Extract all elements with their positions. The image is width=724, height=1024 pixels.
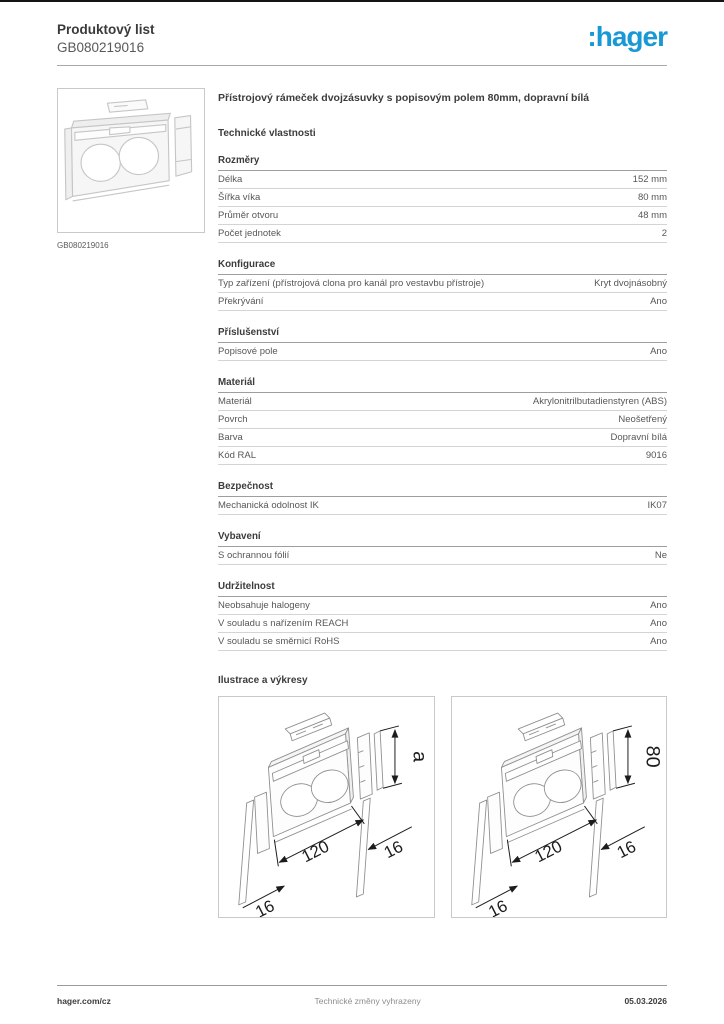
row-label: V souladu s nařízením REACH xyxy=(218,618,360,629)
section-title: Příslušenství xyxy=(218,327,667,343)
details-column: Přístrojový rámeček dvojzásuvky s popiso… xyxy=(218,88,667,918)
section-safety: Bezpečnost Mechanická odolnost IKIK07 xyxy=(218,481,667,515)
table-row: Popisové poleAno xyxy=(218,343,667,361)
header-divider xyxy=(57,65,667,66)
technical-drawing-2: 120 16 16 80 xyxy=(451,696,668,918)
row-value: 80 mm xyxy=(638,192,667,203)
isometric-drawing: 120 16 16 a xyxy=(219,697,434,917)
section-configuration: Konfigurace Typ zařízení (přístrojová cl… xyxy=(218,259,667,311)
table-row: Počet jednotek2 xyxy=(218,225,667,243)
row-label: Průměr otvoru xyxy=(218,210,290,221)
row-label: V souladu se směrnicí RoHS xyxy=(218,636,351,647)
hager-logo: :hager xyxy=(587,23,667,51)
row-value: IK07 xyxy=(647,500,667,511)
table-row: Délka152 mm xyxy=(218,171,667,189)
row-value: Akrylonitrilbutadienstyren (ABS) xyxy=(533,396,667,407)
row-label: Délka xyxy=(218,174,254,185)
header: Produktový list GB080219016 :hager xyxy=(0,0,724,56)
table-row: PřekrýváníAno xyxy=(218,293,667,311)
row-value: 9016 xyxy=(646,450,667,461)
table-row: Neobsahuje halogenyAno xyxy=(218,597,667,615)
row-label: Typ zařízení (přístrojová clona pro kaná… xyxy=(218,278,496,289)
section-sustainability: Udržitelnost Neobsahuje halogenyAno V so… xyxy=(218,581,667,651)
section-title: Konfigurace xyxy=(218,259,667,275)
row-label: Mechanická odolnost IK xyxy=(218,500,331,511)
table-row: V souladu se směrnicí RoHSAno xyxy=(218,633,667,651)
dim-width-label: 120 xyxy=(299,837,333,867)
section-title: Vybavení xyxy=(218,531,667,547)
product-image-column: GB080219016 xyxy=(57,88,205,918)
section-title: Rozměry xyxy=(218,155,667,171)
top-border xyxy=(0,0,724,2)
table-row: PovrchNeošetřený xyxy=(218,411,667,429)
row-label: Barva xyxy=(218,432,255,443)
dim-depth-label: 16 xyxy=(252,896,277,917)
row-value: Neošetřený xyxy=(618,414,667,425)
section-accessories: Příslušenství Popisové poleAno xyxy=(218,327,667,361)
row-value: Ano xyxy=(650,600,667,611)
main-content: GB080219016 Přístrojový rámeček dvojzásu… xyxy=(0,88,724,918)
row-value: Ano xyxy=(650,636,667,647)
row-value: Dopravní bílá xyxy=(610,432,667,443)
table-row: Šířka víka80 mm xyxy=(218,189,667,207)
footer: hager.com/cz Technické změny vyhrazeny 0… xyxy=(57,985,667,1006)
table-row: MateriálAkrylonitrilbutadienstyren (ABS) xyxy=(218,393,667,411)
product-title: Přístrojový rámeček dvojzásuvky s popiso… xyxy=(218,91,667,105)
product-image xyxy=(57,88,205,233)
row-label: Počet jednotek xyxy=(218,228,293,239)
footer-website-link[interactable]: hager.com/cz xyxy=(57,996,111,1006)
row-value: 2 xyxy=(662,228,667,239)
footer-date: 05.03.2026 xyxy=(624,996,667,1006)
table-row: Kód RAL9016 xyxy=(218,447,667,465)
row-value: Ne xyxy=(655,550,667,561)
table-row: Mechanická odolnost IKIK07 xyxy=(218,497,667,515)
table-row: S ochrannou fóliíNe xyxy=(218,547,667,565)
illustrations-heading: Ilustrace a výkresy xyxy=(218,675,667,686)
row-label: Kód RAL xyxy=(218,450,268,461)
row-value: Ano xyxy=(650,346,667,357)
row-label: S ochrannou fólií xyxy=(218,550,301,561)
doc-product-id: GB080219016 xyxy=(57,39,155,57)
row-value: Kryt dvojnásobný xyxy=(594,278,667,289)
doc-type-title: Produktový list xyxy=(57,21,155,39)
dim-width-label: 120 xyxy=(531,837,565,867)
section-dimensions: Rozměry Délka152 mm Šířka víka80 mm Prům… xyxy=(218,155,667,243)
product-line-art xyxy=(58,92,204,229)
section-material: Materiál MateriálAkrylonitrilbutadiensty… xyxy=(218,377,667,465)
row-label: Popisové pole xyxy=(218,346,290,357)
table-row: V souladu s nařízením REACHAno xyxy=(218,615,667,633)
row-value: 48 mm xyxy=(638,210,667,221)
section-equipment: Vybavení S ochrannou fóliíNe xyxy=(218,531,667,565)
technical-drawings: 120 16 16 a xyxy=(218,696,667,918)
footer-disclaimer: Technické změny vyhrazeny xyxy=(315,996,421,1006)
table-row: Typ zařízení (přístrojová clona pro kaná… xyxy=(218,275,667,293)
datasheet-page: Produktový list GB080219016 :hager xyxy=(0,0,724,1024)
technical-drawing-1: 120 16 16 a xyxy=(218,696,435,918)
row-value: 152 mm xyxy=(633,174,667,185)
row-label: Neobsahuje halogeny xyxy=(218,600,322,611)
row-label: Povrch xyxy=(218,414,260,425)
row-label: Šířka víka xyxy=(218,192,272,203)
row-value: Ano xyxy=(650,296,667,307)
section-title: Materiál xyxy=(218,377,667,393)
product-image-caption: GB080219016 xyxy=(57,241,205,250)
row-label: Překrývání xyxy=(218,296,275,307)
section-title: Bezpečnost xyxy=(218,481,667,497)
dim-height-label: 80 xyxy=(641,746,663,768)
header-titles: Produktový list GB080219016 xyxy=(57,21,155,56)
dim-depth-label: 16 xyxy=(485,896,510,917)
dim-height-label: a xyxy=(409,751,431,762)
section-title: Udržitelnost xyxy=(218,581,667,597)
table-row: Průměr otvoru48 mm xyxy=(218,207,667,225)
isometric-drawing: 120 16 16 80 xyxy=(452,697,667,917)
row-value: Ano xyxy=(650,618,667,629)
row-label: Materiál xyxy=(218,396,264,407)
table-row: BarvaDopravní bílá xyxy=(218,429,667,447)
tech-properties-heading: Technické vlastnosti xyxy=(218,128,667,139)
